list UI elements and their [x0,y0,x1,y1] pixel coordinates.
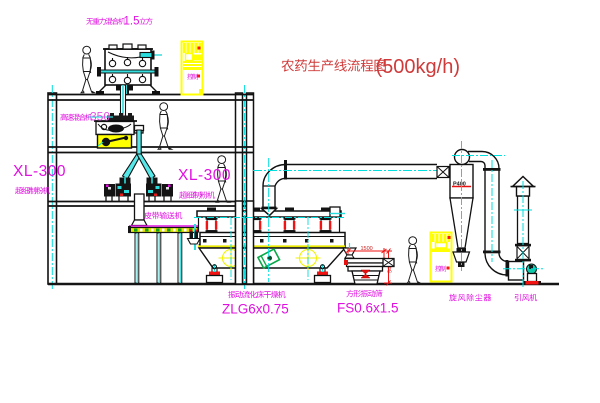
svg-text:P400: P400 [453,182,466,188]
svg-text:XL-300: XL-300 [178,167,231,184]
svg-text:1.5: 1.5 [124,16,140,28]
svg-text:(500kg/h): (500kg/h) [376,56,461,78]
svg-text:XL-300: XL-300 [13,163,66,180]
svg-text:350: 350 [90,110,110,124]
svg-text:1500: 1500 [361,246,373,252]
svg-text:ZLG6x0.75: ZLG6x0.75 [222,302,289,317]
svg-text:FS0.6x1.5: FS0.6x1.5 [337,301,399,316]
